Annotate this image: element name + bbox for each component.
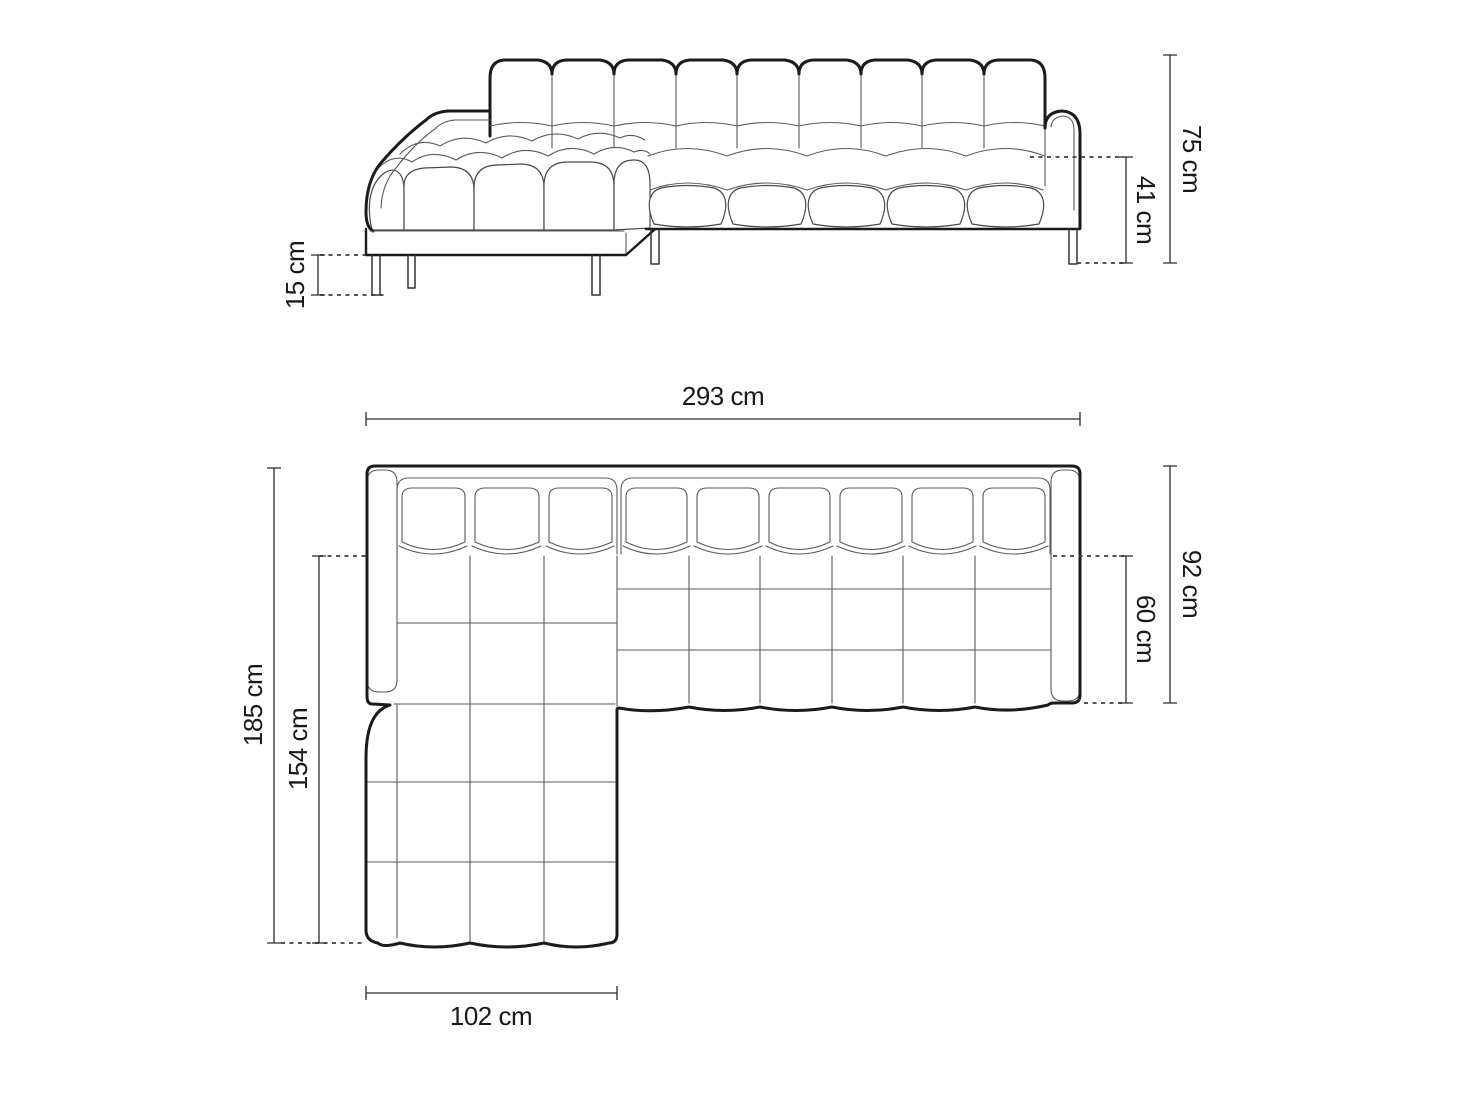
back-cushion — [837, 488, 905, 554]
back-cushion — [766, 488, 833, 554]
back-cushion — [472, 488, 541, 554]
plan-right-armrest-pad — [1051, 470, 1080, 701]
dimension-total-width: 293 cm — [366, 381, 1080, 426]
backrest-horizontal-seam — [490, 123, 1045, 127]
plan-back-cushions — [399, 488, 1048, 554]
backrest-top-outline — [490, 60, 1045, 136]
chaise-front-cushion-2 — [474, 164, 544, 230]
chaise-base — [366, 229, 654, 255]
back-cushion — [399, 488, 467, 554]
seat-back-scallop-row — [648, 149, 1045, 157]
chaise-front-cushion-4 — [614, 160, 650, 230]
right-armrest-inner-seam — [1045, 116, 1074, 210]
back-cushion — [694, 488, 762, 554]
dimension-seat-depth: 60 cm — [1119, 556, 1161, 703]
dim-label-seat-height: 41 cm — [1131, 176, 1161, 244]
dimension-chaise-width: 102 cm — [366, 986, 617, 1031]
sofa-legs — [372, 229, 1077, 295]
right-armrest-outline — [1045, 111, 1080, 228]
top-plan-view: 293 cm 185 cm 154 cm 92 cm 60 cm — [238, 381, 1207, 1031]
back-cushion — [623, 488, 690, 554]
chaise-front-cushion-1 — [404, 167, 474, 230]
dimension-total-height: 75 cm — [1163, 55, 1207, 263]
seat-cushion-4 — [887, 186, 964, 228]
dim-label-chaise-length: 154 cm — [283, 708, 313, 790]
dimension-side-depth: 92 cm — [1163, 466, 1207, 703]
seat-cushion-1 — [649, 186, 725, 228]
back-cushion — [980, 488, 1048, 554]
plan-left-armrest-pad — [367, 470, 397, 692]
back-cushion — [909, 488, 976, 554]
sofa-dimension-diagram: 15 cm 41 cm 75 cm — [0, 0, 1459, 1094]
back-cushion — [546, 488, 614, 554]
seat-cushion-5 — [967, 186, 1043, 228]
front-elevation-view: 15 cm 41 cm 75 cm — [280, 55, 1207, 309]
chaise-front-cushion-corner — [369, 170, 404, 230]
dim-label-chaise-width: 102 cm — [450, 1001, 532, 1031]
dim-label-side-depth: 92 cm — [1177, 550, 1207, 618]
dimension-total-depth: 185 cm — [238, 468, 281, 943]
dim-label-leg-height: 15 cm — [280, 241, 310, 309]
plan-backrest-section-left — [397, 478, 617, 554]
dim-label-total-width: 293 cm — [682, 381, 764, 411]
dimension-leg-height: 15 cm — [280, 241, 325, 309]
chaise-base-top-edge — [370, 231, 626, 253]
dim-label-total-height: 75 cm — [1177, 125, 1207, 193]
chaise-front-cushion-3 — [544, 162, 614, 230]
dim-label-seat-depth: 60 cm — [1131, 595, 1161, 663]
dim-label-total-depth: 185 cm — [238, 664, 268, 746]
plan-extension-dashed-lines — [281, 556, 1124, 943]
technical-drawing-page: 15 cm 41 cm 75 cm — [0, 0, 1459, 1094]
plan-seat-seams — [366, 556, 1050, 941]
seat-cushion-2 — [728, 186, 805, 228]
seat-cushion-3 — [808, 186, 884, 228]
dimension-seat-height: 41 cm — [1119, 157, 1161, 263]
dimension-chaise-length: 154 cm — [283, 556, 326, 943]
